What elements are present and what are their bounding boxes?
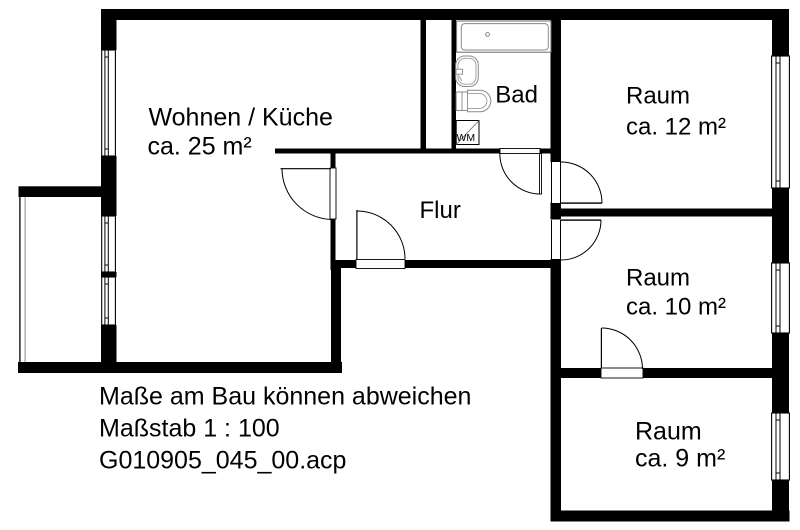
svg-text:Raum: Raum: [626, 265, 690, 292]
svg-text:Flur: Flur: [420, 197, 461, 224]
svg-text:Maßstab 1 : 100: Maßstab 1 : 100: [99, 415, 280, 443]
svg-text:ca. 25 m²: ca. 25 m²: [148, 133, 252, 161]
svg-text:ca. 9 m²: ca. 9 m²: [635, 445, 725, 473]
svg-text:ca. 12 m²: ca. 12 m²: [626, 114, 726, 141]
svg-text:Bad: Bad: [495, 82, 538, 109]
svg-text:G010905_045_00.acp: G010905_045_00.acp: [99, 447, 346, 475]
svg-text:WM: WM: [457, 132, 476, 144]
svg-text:Raum: Raum: [626, 83, 690, 110]
svg-text:ca. 10 m²: ca. 10 m²: [626, 293, 726, 320]
svg-text:Wohnen / Küche: Wohnen / Küche: [149, 104, 333, 132]
svg-text:Maße am Bau können abweichen: Maße am Bau können abweichen: [99, 383, 471, 411]
svg-text:Raum: Raum: [635, 418, 702, 446]
